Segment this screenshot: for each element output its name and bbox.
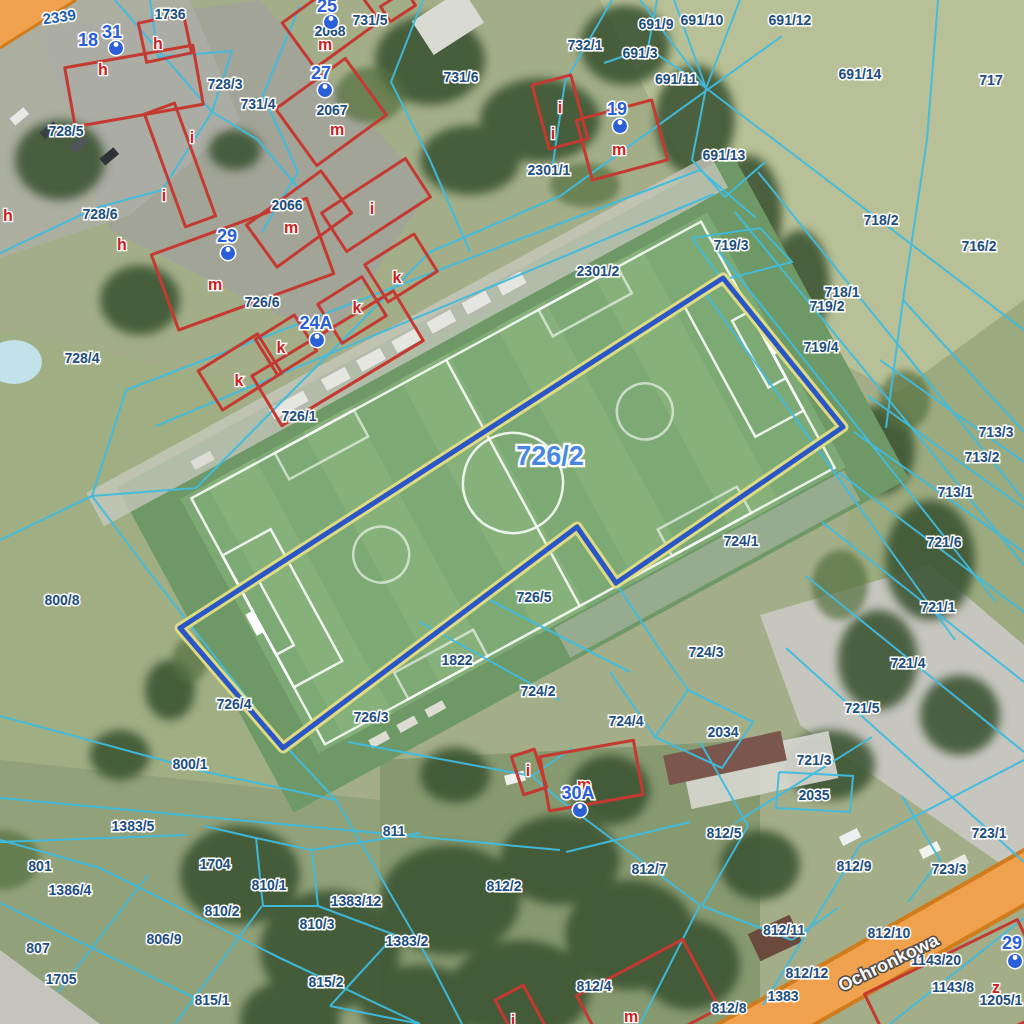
building-letter: m (330, 121, 344, 138)
selected-parcel-label: 726/2 (516, 441, 584, 471)
parcel-label-1383/5: 1383/5 (112, 818, 155, 834)
building-letter: h (3, 207, 13, 224)
parcel-label-815/1: 815/1 (194, 992, 229, 1008)
parcel-label-811: 811 (383, 823, 406, 839)
parcel-label-1143/8: 1143/8 (932, 979, 974, 995)
parcel-label-713/2: 713/2 (964, 449, 999, 465)
parcel-label-812/8: 812/8 (711, 1000, 746, 1016)
building-letter: i (190, 129, 194, 146)
address-number: 31 (102, 22, 122, 42)
parcel-label-2034: 2034 (707, 724, 738, 740)
parcel-label-800/8: 800/8 (44, 592, 79, 608)
address-number: 29 (1002, 933, 1022, 953)
parcel-label-724/3: 724/3 (688, 644, 723, 660)
parcel-label-1704: 1704 (199, 856, 230, 872)
parcel-label-717: 717 (979, 72, 1003, 88)
parcel-label-1736: 1736 (154, 6, 185, 22)
parcel-label-713/1: 713/1 (937, 484, 972, 500)
parcel-label-691/10: 691/10 (681, 12, 724, 28)
parcel-label-721/5: 721/5 (844, 700, 879, 716)
parcel-label-812/5: 812/5 (706, 825, 741, 841)
parcel-label-726/1: 726/1 (281, 408, 316, 424)
parcel-label-719/2: 719/2 (809, 298, 844, 314)
parcel-label-726/4: 726/4 (216, 696, 251, 712)
parcel-label-721/3: 721/3 (796, 752, 831, 768)
cadastral-map-svg: 1736728/3731/4728/5728/6206620682067731/… (0, 0, 1024, 1024)
parcel-label-812/12: 812/12 (786, 965, 829, 981)
parcel-label-810/2: 810/2 (204, 903, 239, 919)
parcel-label-2301/2: 2301/2 (577, 263, 620, 279)
parcel-label-726/3: 726/3 (353, 709, 388, 725)
parcel-label-1383/2: 1383/2 (386, 933, 429, 949)
address-number: 19 (607, 99, 627, 119)
parcel-label-691/3: 691/3 (622, 45, 657, 61)
building-letter: m (612, 141, 626, 158)
parcel-label-726/5: 726/5 (516, 589, 551, 605)
parcel-label-1205/1: 1205/1 (980, 992, 1023, 1008)
building-letter: k (277, 339, 286, 356)
parcel-label-716/2: 716/2 (961, 238, 996, 254)
building-letter: i (162, 187, 166, 204)
map-canvas[interactable]: 1736728/3731/4728/5728/6206620682067731/… (0, 0, 1024, 1024)
building-letter: m (208, 276, 222, 293)
parcel-label-806/9: 806/9 (146, 931, 181, 947)
building-letter: k (353, 299, 362, 316)
parcel-label-2035: 2035 (798, 787, 829, 803)
building-letter: m (284, 219, 298, 236)
parcel-label-812/9: 812/9 (836, 858, 871, 874)
parcel-label-691/12: 691/12 (769, 12, 812, 28)
parcel-label-731/4: 731/4 (240, 96, 275, 112)
parcel-label-728/3: 728/3 (207, 76, 242, 92)
building-letter: h (153, 35, 163, 52)
parcel-label-721/1: 721/1 (920, 599, 955, 615)
address-number: 18 (78, 30, 98, 50)
parcel-label-1383: 1383 (767, 988, 798, 1004)
parcel-label-732/1: 732/1 (567, 37, 602, 53)
parcel-label-728/4: 728/4 (64, 350, 99, 366)
parcel-label-719/3: 719/3 (713, 237, 748, 253)
parcel-label-691/14: 691/14 (839, 66, 882, 82)
parcel-label-800/1: 800/1 (172, 756, 207, 772)
address-number: 30A (561, 783, 594, 803)
address-marker-18: 18 (78, 30, 98, 50)
address-number: 25 (317, 0, 337, 16)
parcel-label-815/2: 815/2 (308, 974, 343, 990)
building-letter: k (235, 372, 244, 389)
parcel-label-691/9: 691/9 (638, 16, 673, 32)
building-letter: i (511, 1012, 515, 1024)
building-letter: h (98, 61, 108, 78)
parcel-label-691/13: 691/13 (703, 147, 746, 163)
building-letter: z (992, 979, 1000, 996)
parcel-label-812/2: 812/2 (486, 878, 521, 894)
building-letter: i (551, 125, 555, 142)
parcel-label-1822: 1822 (441, 652, 472, 668)
parcel-label-2067: 2067 (316, 102, 347, 118)
parcel-label-1705: 1705 (45, 971, 76, 987)
parcel-label-812/10: 812/10 (868, 925, 911, 941)
parcel-label-812/4: 812/4 (576, 978, 611, 994)
parcel-label-719/4: 719/4 (803, 339, 838, 355)
parcel-label-810/1: 810/1 (251, 877, 286, 893)
parcel-label-726/6: 726/6 (244, 294, 279, 310)
parcel-label-1386/4: 1386/4 (49, 882, 92, 898)
parcel-label-801: 801 (28, 858, 52, 874)
building-letter: i (526, 762, 530, 779)
parcel-label-1383/12: 1383/12 (331, 893, 382, 909)
parcel-label-721/6: 721/6 (926, 534, 961, 550)
building-letter: m (624, 1008, 638, 1024)
parcel-label-728/6: 728/6 (82, 206, 117, 222)
parcel-label-691/11: 691/11 (655, 71, 697, 87)
parcel-label-723/3: 723/3 (931, 861, 966, 877)
parcel-label-728/5: 728/5 (48, 123, 83, 139)
parcel-label-724/4: 724/4 (608, 713, 643, 729)
parcel-label-724/2: 724/2 (520, 683, 555, 699)
parcel-label-731/6: 731/6 (443, 69, 478, 85)
building-letter: i (370, 200, 374, 217)
parcel-label-807: 807 (26, 940, 50, 956)
parcel-label-2066: 2066 (271, 197, 302, 213)
building-letter: k (393, 269, 402, 286)
address-number: 27 (311, 63, 331, 83)
parcel-label-812/11: 812/11 (763, 922, 805, 938)
parcel-label-724/1: 724/1 (723, 533, 758, 549)
building-letter: i (558, 99, 562, 116)
parcel-label-2301/1: 2301/1 (528, 162, 571, 178)
building-letter: h (117, 236, 127, 253)
parcel-label-812/7: 812/7 (631, 861, 666, 877)
address-number: 29 (217, 226, 237, 246)
parcel-label-713/3: 713/3 (978, 424, 1013, 440)
parcel-label-718/2: 718/2 (863, 212, 898, 228)
building-letter: m (318, 36, 332, 53)
address-number: 24A (299, 313, 332, 333)
parcel-label-731/5: 731/5 (352, 12, 387, 28)
parcel-label-810/3: 810/3 (299, 916, 334, 932)
parcel-label-723/1: 723/1 (971, 825, 1006, 841)
parcel-label-721/4: 721/4 (890, 655, 925, 671)
